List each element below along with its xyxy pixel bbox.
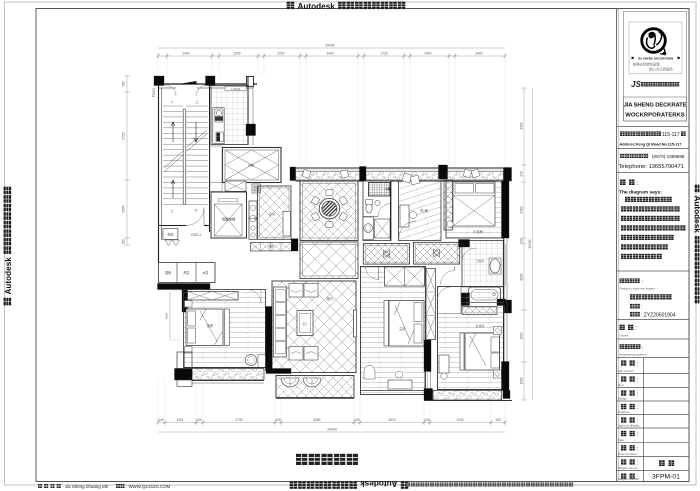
svg-text:客厅: 客厅 bbox=[327, 296, 334, 301]
svg-text:JIA SHENG DECORATION: JIA SHENG DECORATION bbox=[638, 57, 674, 61]
svg-text:Drive for Name:: Drive for Name: bbox=[618, 452, 638, 456]
svg-text:风井: 风井 bbox=[183, 270, 189, 275]
svg-text:780: 780 bbox=[122, 239, 126, 245]
svg-text:: WWW.QZJSZS.COM: : WWW.QZJSZS.COM bbox=[126, 484, 170, 489]
svg-text:强电: 强电 bbox=[167, 232, 173, 237]
svg-text:3400: 3400 bbox=[326, 52, 333, 56]
svg-text:240: 240 bbox=[424, 418, 430, 422]
svg-text:6300: 6300 bbox=[122, 205, 126, 212]
svg-text:Autodesk: Autodesk bbox=[360, 479, 398, 488]
svg-text:3400: 3400 bbox=[475, 52, 482, 56]
svg-text:FMZ.3: FMZ.3 bbox=[191, 233, 201, 237]
svg-text:水井: 水井 bbox=[202, 270, 208, 275]
svg-text:3610: 3610 bbox=[388, 418, 395, 422]
svg-text:Approve officially:: Approve officially: bbox=[618, 424, 640, 428]
svg-text:780: 780 bbox=[122, 81, 126, 87]
svg-text:The diagram says:: The diagram says: bbox=[619, 190, 662, 196]
svg-text:Telephone: 13655700471: Telephone: 13655700471 bbox=[619, 164, 684, 170]
svg-text:客房: 客房 bbox=[207, 323, 213, 328]
svg-text:1500: 1500 bbox=[520, 377, 524, 384]
svg-text:Address:Feng Qi Road No.115-11: Address:Feng Qi Road No.115-117 bbox=[620, 143, 682, 147]
svg-text:信得过的装饰品牌: 信得过的装饰品牌 bbox=[632, 62, 660, 67]
svg-text:240: 240 bbox=[354, 418, 360, 422]
svg-text:(0570) 2389588: (0570) 2389588 bbox=[652, 154, 685, 159]
svg-text:2000: 2000 bbox=[520, 332, 524, 339]
svg-text:24400: 24400 bbox=[327, 428, 337, 432]
svg-text:Design:: Design: bbox=[618, 397, 628, 401]
svg-text:FMZ3: FMZ3 bbox=[152, 88, 156, 97]
svg-text:女孩房: 女孩房 bbox=[475, 323, 484, 328]
svg-text:下: 下 bbox=[194, 209, 198, 213]
svg-text:1151: 1151 bbox=[177, 418, 184, 422]
svg-text:Diagram number:: Diagram number: bbox=[618, 477, 640, 481]
svg-text:鞋柜: 鞋柜 bbox=[268, 245, 274, 249]
svg-text:JS: JS bbox=[631, 80, 641, 89]
svg-text:Item:: Item: bbox=[618, 383, 624, 387]
svg-text:L-DPH4: L-DPH4 bbox=[231, 87, 241, 91]
svg-text::: : bbox=[642, 345, 644, 351]
svg-text::: : bbox=[642, 279, 643, 285]
svg-text:240: 240 bbox=[158, 418, 164, 422]
svg-text:100: 100 bbox=[495, 418, 501, 422]
svg-text:240: 240 bbox=[520, 171, 524, 177]
svg-text:Date:: Date: bbox=[618, 438, 625, 442]
svg-text:2200: 2200 bbox=[277, 52, 284, 56]
svg-text:3FPM-01: 3FPM-01 bbox=[652, 474, 680, 481]
svg-text:2400: 2400 bbox=[424, 52, 431, 56]
svg-text:1200: 1200 bbox=[456, 418, 463, 422]
svg-text:2200: 2200 bbox=[233, 52, 240, 56]
svg-text:Part number:: Part number: bbox=[618, 369, 634, 373]
svg-text:3550: 3550 bbox=[165, 312, 169, 319]
svg-text:Design to cover the chapter:: Design to cover the chapter: bbox=[620, 287, 656, 291]
svg-text:3300: 3300 bbox=[520, 122, 524, 129]
svg-text:Diagram do not:: Diagram do not: bbox=[618, 466, 638, 470]
svg-text::: : bbox=[637, 180, 639, 187]
svg-text:115-117: 115-117 bbox=[662, 132, 680, 138]
svg-text:WOCKRPORATERKS: WOCKRPORATERKS bbox=[625, 113, 685, 119]
svg-text:Engineering address:: Engineering address: bbox=[620, 353, 648, 357]
svg-text:5280: 5280 bbox=[313, 418, 320, 422]
svg-text:Autodesk: Autodesk bbox=[693, 196, 700, 234]
svg-text:240: 240 bbox=[520, 238, 524, 244]
svg-text:Graphics:: Graphics: bbox=[618, 410, 630, 414]
svg-text:卫生间: 卫生间 bbox=[476, 259, 485, 263]
svg-text:4730: 4730 bbox=[235, 418, 242, 422]
svg-text:茶几: 茶几 bbox=[302, 322, 308, 326]
svg-text::: : bbox=[641, 305, 642, 311]
svg-text:2400: 2400 bbox=[520, 206, 524, 213]
svg-text:24400: 24400 bbox=[325, 44, 335, 48]
svg-text:Autodesk: Autodesk bbox=[298, 2, 336, 11]
svg-text:2400: 2400 bbox=[182, 52, 189, 56]
svg-text:Jia Sheng Zhuang Shi: Jia Sheng Zhuang Shi bbox=[65, 484, 108, 489]
svg-text:主卧: 主卧 bbox=[399, 326, 406, 331]
svg-text:上: 上 bbox=[195, 99, 199, 104]
svg-text:240: 240 bbox=[275, 418, 281, 422]
svg-text:2750: 2750 bbox=[122, 132, 126, 139]
svg-text:玄关: 玄关 bbox=[269, 211, 275, 216]
svg-text:Owner:: Owner: bbox=[620, 334, 630, 338]
svg-text:中厨: 中厨 bbox=[248, 163, 254, 168]
svg-text:强电: 强电 bbox=[165, 270, 172, 275]
svg-text:小孩房: 小孩房 bbox=[473, 229, 483, 234]
svg-text:240: 240 bbox=[196, 418, 202, 422]
svg-text:6000: 6000 bbox=[520, 273, 524, 280]
svg-text:: ZYZ20501904: : ZYZ20501904 bbox=[641, 313, 676, 319]
svg-text:上: 上 bbox=[170, 208, 174, 213]
svg-text:JIA SHENG DECKRATE: JIA SHENG DECKRATE bbox=[624, 103, 687, 109]
svg-text:Autodesk: Autodesk bbox=[4, 257, 13, 295]
svg-text:别墅电梯: 别墅电梯 bbox=[222, 217, 236, 222]
svg-text:书 房: 书 房 bbox=[420, 208, 429, 213]
svg-text:用心为之而服务: 用心为之而服务 bbox=[649, 67, 673, 72]
svg-text:1730: 1730 bbox=[380, 52, 387, 56]
svg-text:29130: 29130 bbox=[528, 239, 532, 248]
